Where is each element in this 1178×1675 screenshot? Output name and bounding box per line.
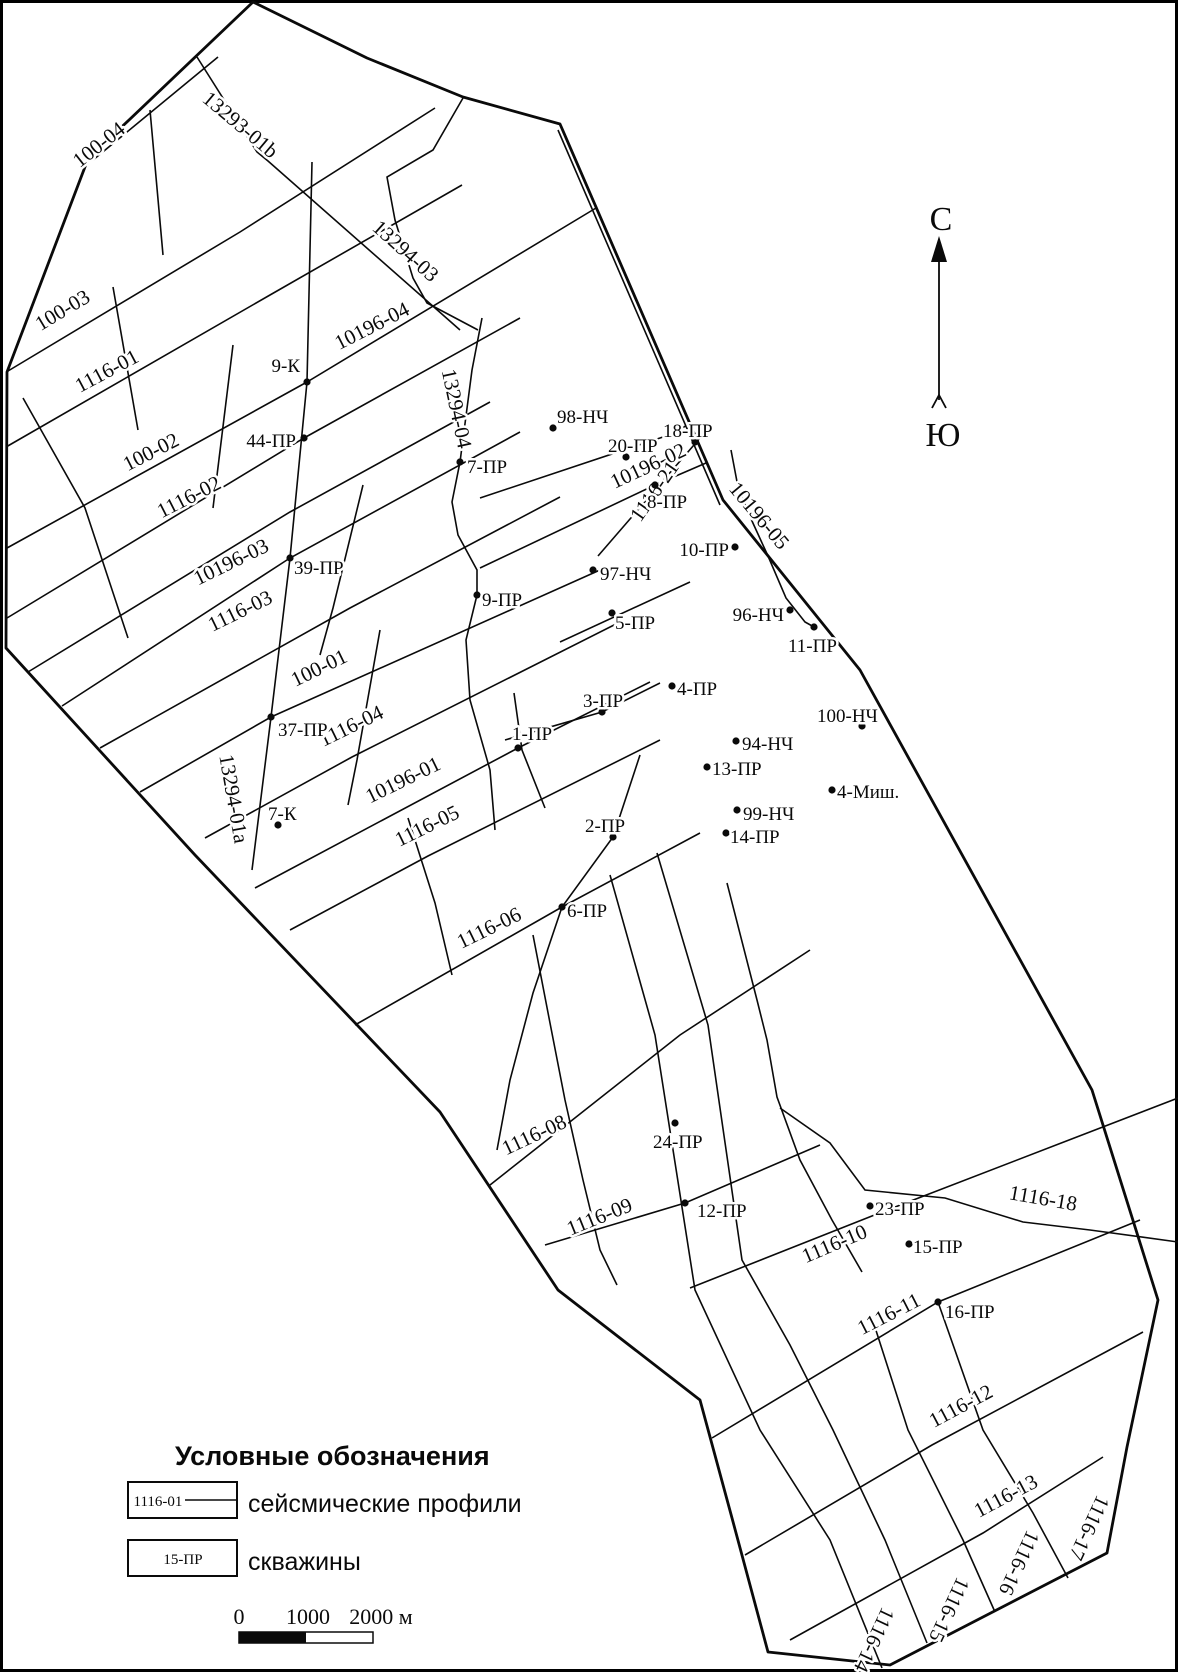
- well-dot-9-К: [303, 378, 310, 385]
- well-dot-13-ПР: [703, 763, 710, 770]
- legend-item-seismic-profiles: 1116-01 сейсмические профили: [128, 1482, 522, 1518]
- well-label-9-К: 9-К: [272, 356, 301, 377]
- profile-label-1116-02: 1116-02: [153, 471, 225, 523]
- profile-line-100-02: [7, 318, 520, 618]
- well-label-7-ПР: 7-ПР: [467, 457, 507, 478]
- scale-tick-0: 0: [234, 1604, 245, 1629]
- south-label: Ю: [926, 417, 961, 454]
- well-label-20-ПР: 20-ПР: [608, 436, 658, 457]
- profile-label-1116-06: 1116-06: [453, 902, 525, 954]
- scale-bar-filled-segment: [239, 1632, 306, 1643]
- profile-line-1116-10: [690, 1098, 1178, 1288]
- well-dot-14-ПР: [722, 829, 729, 836]
- well-label-100-НЧ: 100-НЧ: [817, 706, 878, 727]
- profile-label-10196-03: 10196-03: [189, 533, 272, 590]
- scale-tick-2000: 2000 м: [349, 1604, 413, 1629]
- well-label-15-ПР: 15-ПР: [913, 1237, 963, 1258]
- north-label: С: [930, 201, 953, 238]
- well-label-96-НЧ: 96-НЧ: [733, 605, 784, 626]
- profile-label-13294-01a: 13294-01a: [214, 752, 253, 845]
- well-dot-97-НЧ: [589, 566, 596, 573]
- well-label-13-ПР: 13-ПР: [712, 759, 762, 780]
- profile-label-13293-01b: 13293-01b: [198, 86, 283, 163]
- well-label-4-ПР: 4-ПР: [677, 679, 717, 700]
- well-dot-9-ПР: [473, 591, 480, 598]
- well-dot-10-ПР: [731, 543, 738, 550]
- well-label-18-ПР: 18-ПР: [663, 421, 713, 442]
- north-arrow: С Ю: [926, 201, 961, 454]
- north-arrow-head-icon: [931, 236, 947, 262]
- well-label-7-К: 7-К: [268, 804, 297, 825]
- well-dot-15-ПР: [905, 1240, 912, 1247]
- survey-area-outline: [6, 2, 1158, 1665]
- scale-bar: 0 1000 2000 м: [234, 1604, 413, 1643]
- profile-line-10196-01: [255, 682, 650, 888]
- well-label-12-ПР: 12-ПР: [697, 1201, 747, 1222]
- well-dot-16-ПР: [934, 1298, 941, 1305]
- well-label-39-ПР: 39-ПР: [294, 558, 344, 579]
- profile-line-1116-08: [490, 950, 810, 1185]
- well-dot-39-ПР: [286, 554, 293, 561]
- profile-label-100-04: 100-04: [68, 116, 130, 172]
- legend-swatch-well-code: 15-ПР: [163, 1552, 202, 1568]
- profile-line: [497, 755, 640, 1150]
- well-label-94-НЧ: 94-НЧ: [742, 734, 793, 755]
- well-dot-4-ПР: [668, 682, 675, 689]
- profile-line-100-01: [140, 570, 600, 792]
- well-dot-6-ПР: [558, 903, 565, 910]
- well-label-11-ПР: 11-ПР: [788, 636, 837, 657]
- profile-label-1116-18: 1116-18: [1007, 1180, 1079, 1216]
- well-dot-44-ПР: [300, 434, 307, 441]
- well-label-44-ПР: 44-ПР: [246, 431, 296, 452]
- well-dot-96-НЧ: [786, 606, 793, 613]
- well-label-5-ПР: 5-ПР: [615, 613, 655, 634]
- profile-line-1116-03: [100, 497, 560, 748]
- well-dot-7-ПР: [456, 458, 463, 465]
- well-label-23-ПР: 23-ПР: [875, 1199, 925, 1220]
- well-label-97-НЧ: 97-НЧ: [600, 564, 651, 585]
- well-label-14-ПР: 14-ПР: [730, 827, 780, 848]
- well-label-98-НЧ: 98-НЧ: [557, 407, 608, 428]
- well-label-6-ПР: 6-ПР: [567, 901, 607, 922]
- survey-map: 100-04100-031116-0110196-04100-021116-02…: [0, 0, 1178, 1675]
- profile-line-13293-01b: [197, 57, 460, 330]
- profile-line-1116-14: [610, 875, 882, 1668]
- legend-item-label: скважины: [248, 1548, 361, 1576]
- well-dot-99-НЧ: [733, 806, 740, 813]
- profile-label-13294-03: 13294-03: [368, 215, 444, 287]
- well-label-24-ПР: 24-ПР: [653, 1132, 703, 1153]
- legend: Условные обозначения 1116-01 сейсмически…: [128, 1441, 522, 1576]
- profile-line: [150, 110, 163, 255]
- well-label-2-ПР: 2-ПР: [585, 816, 625, 837]
- legend-item-label: сейсмические профили: [248, 1490, 522, 1518]
- well-dot-8-ПР: [651, 481, 658, 488]
- well-label-1-ПР: 1-ПР: [512, 724, 552, 745]
- legend-title: Условные обозначения: [175, 1441, 490, 1471]
- survey-map-page: 100-04100-031116-0110196-04100-021116-02…: [0, 0, 1178, 1675]
- well-dot-1-ПР: [514, 744, 521, 751]
- well-label-3-ПР: 3-ПР: [583, 691, 623, 712]
- scale-tick-1000: 1000: [286, 1604, 330, 1629]
- profile-label-1116-03: 1116-03: [204, 585, 276, 637]
- profile-line-1116-06: [355, 833, 700, 1025]
- well-label-9-ПР: 9-ПР: [482, 590, 522, 611]
- well-dot-4-Миш.: [828, 786, 835, 793]
- profile-line: [727, 883, 862, 1272]
- well-label-37-ПР: 37-ПР: [278, 720, 328, 741]
- well-dot-94-НЧ: [732, 737, 739, 744]
- well-dot-23-ПР: [866, 1202, 873, 1209]
- profile-label-1116-12: 1116-12: [925, 1379, 997, 1432]
- profile-line-1116-17: [938, 1302, 1068, 1578]
- profile-label-1116-10: 1116-10: [798, 1219, 870, 1268]
- profile-label-1116-09: 1116-09: [563, 1193, 635, 1241]
- well-dot-98-НЧ: [549, 424, 556, 431]
- well-label-10-ПР: 10-ПР: [679, 540, 729, 561]
- well-dot-37-ПР: [267, 713, 274, 720]
- profile-label-10196-01: 10196-01: [361, 751, 444, 808]
- seismic-profiles-layer: 100-04100-031116-0110196-04100-021116-02…: [6, 57, 1178, 1675]
- profile-label-100-01: 100-01: [287, 644, 351, 692]
- profile-line: [23, 398, 128, 638]
- well-dot-24-ПР: [671, 1119, 678, 1126]
- profile-label-100-03: 100-03: [31, 284, 94, 335]
- well-label-99-НЧ: 99-НЧ: [743, 804, 794, 825]
- legend-swatch-profile-code: 1116-01: [134, 1494, 183, 1510]
- profile-label-1116-15: 1116-15: [924, 1574, 975, 1646]
- well-label-16-ПР: 16-ПР: [945, 1302, 995, 1323]
- profile-line-13294-03: [387, 98, 478, 330]
- well-dot-12-ПР: [681, 1199, 688, 1206]
- well-dot-11-ПР: [810, 623, 817, 630]
- profile-label-1116-08: 1116-08: [498, 1109, 570, 1160]
- profile-label-1116-13: 1116-13: [970, 1469, 1042, 1522]
- well-label-4-Миш.: 4-Миш.: [837, 782, 899, 803]
- profile-line-1116-16: [872, 1318, 995, 1612]
- legend-item-wells: 15-ПР скважины: [128, 1540, 361, 1576]
- well-label-8-ПР: 8-ПР: [647, 492, 687, 513]
- survey-boundary-layer: [6, 2, 1158, 1665]
